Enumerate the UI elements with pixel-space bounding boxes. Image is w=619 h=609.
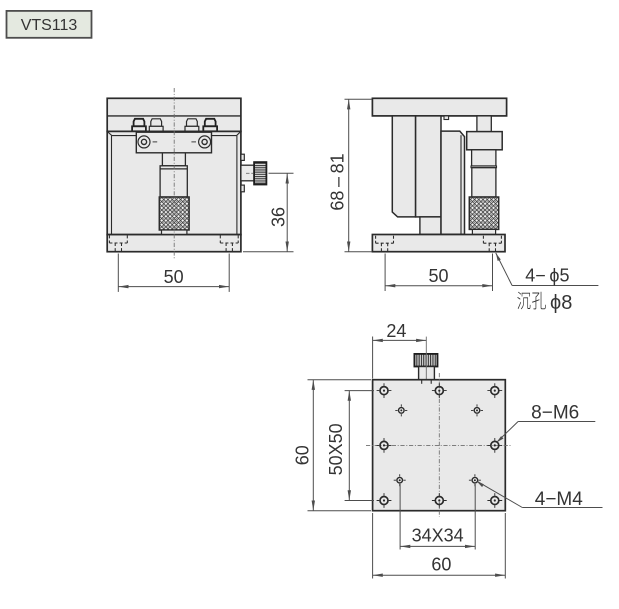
svg-text:50: 50 — [428, 266, 448, 286]
svg-text:34X34: 34X34 — [412, 525, 464, 545]
svg-text:4− ϕ5: 4− ϕ5 — [525, 266, 569, 286]
svg-text:4−M4: 4−M4 — [535, 489, 583, 510]
svg-text:VTS113: VTS113 — [21, 17, 78, 34]
svg-text:50X50: 50X50 — [326, 423, 346, 475]
svg-text:24: 24 — [386, 321, 406, 341]
svg-text:50: 50 — [164, 267, 184, 287]
svg-text:60: 60 — [431, 555, 451, 575]
svg-text:8−M6: 8−M6 — [531, 402, 579, 423]
svg-text:ϕ8: ϕ8 — [550, 292, 572, 314]
svg-text:68 – 81: 68 – 81 — [328, 153, 348, 210]
svg-text:36: 36 — [268, 207, 288, 227]
svg-text:60: 60 — [293, 445, 313, 465]
